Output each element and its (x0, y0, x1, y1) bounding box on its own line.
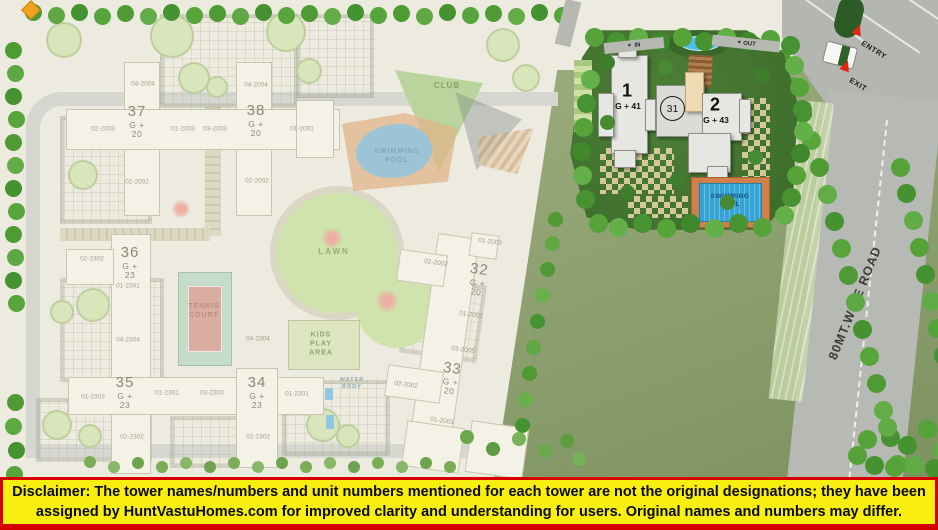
tower-1-number[interactable]: 1 (622, 81, 632, 102)
water-body (325, 388, 333, 400)
faded-tower-label: 37G + 20 (128, 104, 147, 138)
tower-number: 38 (247, 103, 266, 118)
tower-number: 34 (248, 375, 267, 390)
faded-tower-label: 34G + 23 (248, 375, 267, 409)
tower-32-wing (396, 249, 448, 287)
unit-number-label: 02-2302 (246, 434, 270, 441)
garden-circle (76, 288, 110, 322)
garden-circle (68, 160, 98, 190)
flower-bed (172, 200, 190, 218)
amenity-label: LAWN (318, 247, 350, 257)
tree-line-field-edge (545, 236, 560, 251)
tower-number: 33 (442, 360, 463, 377)
paver-path-parcel (628, 196, 688, 218)
circled-tower-number[interactable]: 31 (660, 96, 685, 121)
unit-number-label: 03-2303 (200, 390, 224, 397)
garden-circle (178, 62, 210, 94)
garden-circle (266, 12, 306, 52)
disclaimer-banner: Disclaimer: The tower names/numbers and … (0, 477, 938, 530)
unit-number-label: 02-2003 (91, 126, 115, 133)
master-plan-map: 04-200404-200402-200301-200303-200301-20… (0, 0, 938, 530)
trees-parcel-inner (600, 55, 615, 70)
tower-36-wing (66, 249, 114, 285)
tower-2-footprint[interactable] (739, 99, 751, 133)
amenity-label: CLUB (434, 81, 460, 91)
driveway-stub (555, 0, 582, 47)
in-arrow-icon: ► (627, 43, 632, 48)
swimming-pool-label: SWIMMING POOL (711, 193, 750, 209)
garden-circle (206, 76, 228, 98)
garden-circle (486, 28, 520, 62)
tower-floors: G + 20 (439, 377, 460, 396)
tower-1-floors: G + 41 (615, 101, 641, 111)
tower-floors: G + 20 (128, 121, 147, 138)
amenity-label: KIDS PLAY AREA (309, 330, 333, 357)
circled-tower-number-text: 31 (667, 103, 679, 115)
tower-floors: G + 23 (121, 262, 140, 279)
tree-line-road-right (891, 158, 910, 177)
unit-number-label: 04-2304 (246, 336, 270, 343)
tree-column-left (5, 42, 22, 59)
unit-number-label: 04-2004 (244, 82, 268, 89)
garden-circle (50, 300, 74, 324)
out-label: OUT (743, 40, 756, 47)
terrace-strips (574, 60, 592, 132)
tower-floors: G + 23 (116, 392, 135, 409)
tower-1-footprint[interactable] (598, 93, 614, 137)
unit-number-label: 01-2303 (81, 394, 105, 401)
faded-tower-label: 38G + 20 (247, 103, 266, 137)
unit-number-label: 01-2301 (116, 283, 140, 290)
faded-tower-label: 33G + 20 (439, 360, 462, 396)
garden-circle (78, 424, 102, 448)
unit-number-label: 03-2003 (203, 126, 227, 133)
tower-number: 36 (121, 245, 140, 260)
tower-floors: G + 23 (248, 392, 267, 409)
faded-tower-label: 35G + 23 (116, 375, 135, 409)
courtyard-pavers (296, 14, 374, 98)
tree-ring-parcel (585, 28, 604, 47)
out-arrow-icon: ◄ (736, 40, 741, 45)
tree-row-bottom-faded (84, 456, 96, 468)
disclaimer-line-2: assigned by HuntVastuHomes.com for impro… (3, 502, 935, 522)
tower-2-number[interactable]: 2 (710, 95, 720, 116)
amenity-label: WATER BODY (340, 377, 364, 391)
garden-circle (150, 14, 194, 58)
amenity-label: TENNIS COURT (188, 302, 220, 320)
tower-number: 37 (128, 104, 147, 119)
tower-number: 35 (116, 375, 135, 390)
unit-number-label: 02-2002 (245, 178, 269, 185)
tower-33-foot (401, 420, 465, 474)
unit-number-label: 02-2302 (80, 256, 104, 263)
flower-bed (376, 290, 398, 312)
faded-tower-label: 36G + 23 (121, 245, 140, 279)
flower-bed (322, 228, 342, 248)
unit-number-label: 01-2301 (285, 391, 309, 398)
unit-number-label: 04-2304 (116, 337, 140, 344)
unit-number-label: 04-2004 (131, 81, 155, 88)
tower-2-floors: G + 43 (703, 115, 729, 125)
tower-1-footprint[interactable] (645, 99, 656, 131)
disclaimer-line-1: Disclaimer: The tower names/numbers and … (3, 482, 935, 502)
in-label: IN (634, 42, 641, 49)
unit-number-label: 01-2001 (290, 126, 314, 133)
water-body (326, 415, 334, 429)
tower-number: 32 (469, 261, 490, 278)
amenity-label: SWIMMING POOL (374, 147, 419, 165)
unit-number-label: 01-2003 (171, 126, 195, 133)
garden-circle (512, 64, 540, 92)
garden-circle (46, 22, 82, 58)
unit-number-label: 01-2301 (155, 390, 179, 397)
garden-circle (336, 424, 360, 448)
tower-floors: G + 20 (247, 120, 266, 137)
tree-cluster-bottom-mid (460, 430, 474, 444)
unit-number-label: 02-2302 (120, 434, 144, 441)
paver-path-parcel (600, 148, 674, 194)
tower-1-footprint[interactable] (614, 150, 636, 168)
garden-circle (296, 58, 322, 84)
tower-floors: G + 20 (466, 278, 487, 297)
unit-number-label: 02-2002 (125, 179, 149, 186)
building-bottom-center (465, 420, 530, 480)
